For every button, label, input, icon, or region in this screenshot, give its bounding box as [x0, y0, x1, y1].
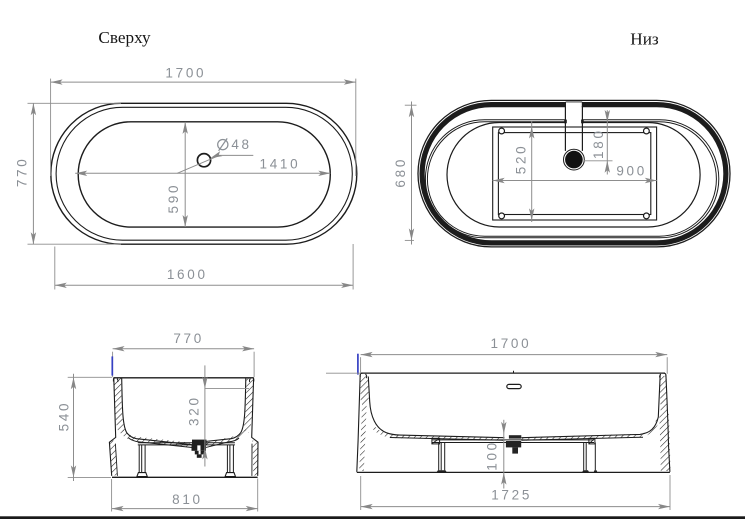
svg-text:680: 680	[393, 157, 408, 188]
svg-text:1700: 1700	[491, 336, 532, 351]
svg-text:1600: 1600	[167, 267, 208, 282]
svg-text:540: 540	[57, 401, 72, 432]
svg-text:520: 520	[514, 144, 529, 175]
svg-text:770: 770	[15, 157, 30, 188]
svg-text:810: 810	[172, 492, 203, 507]
svg-text:320: 320	[187, 395, 202, 426]
svg-text:770: 770	[173, 331, 204, 346]
svg-text:Сверху: Сверху	[98, 28, 151, 47]
svg-text:590: 590	[166, 183, 181, 214]
svg-text:1410: 1410	[260, 156, 301, 171]
svg-text:900: 900	[616, 164, 647, 179]
svg-text:1700: 1700	[165, 66, 206, 81]
svg-text:100: 100	[485, 440, 500, 471]
svg-text:1725: 1725	[491, 488, 532, 503]
svg-text:48: 48	[231, 137, 251, 152]
svg-text:Низ: Низ	[630, 29, 659, 48]
svg-text:180: 180	[591, 128, 606, 159]
